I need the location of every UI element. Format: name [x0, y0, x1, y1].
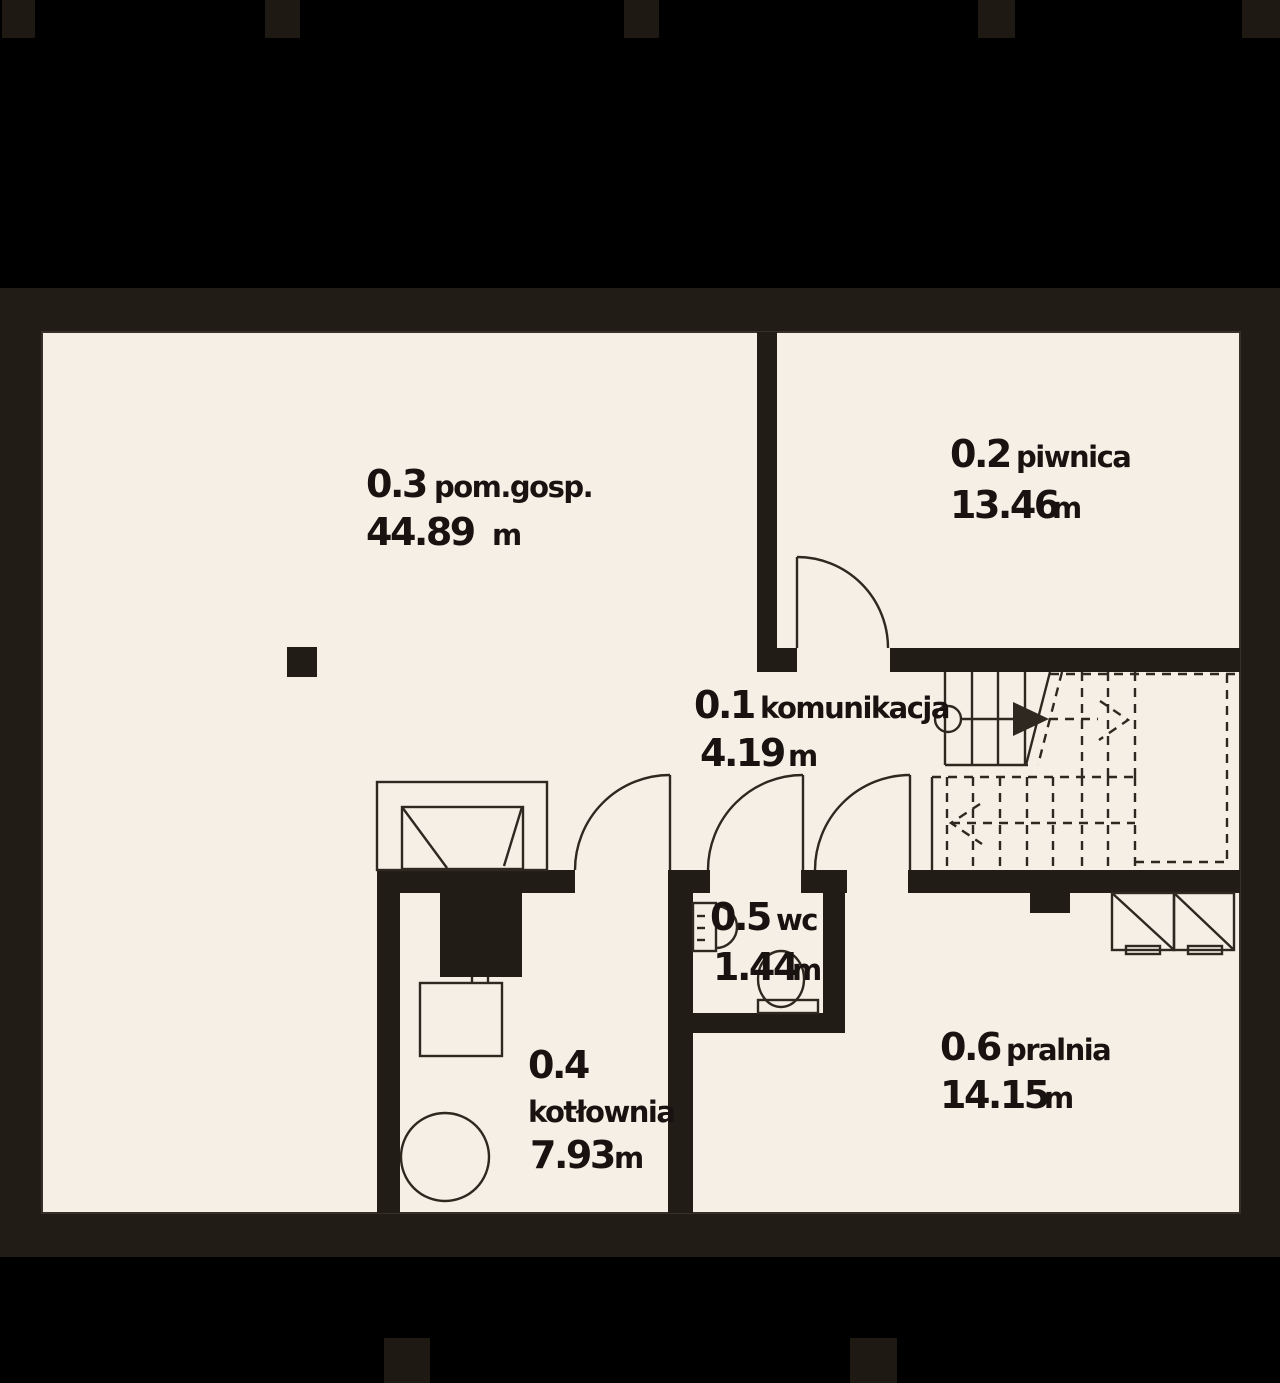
floor-plan: 0.3 pom.gosp. 44.89 m 0.2 piwnica 13.46 …	[0, 0, 1280, 1383]
wall-stub-pralnia	[1030, 893, 1070, 913]
wall-corridor-segment	[668, 870, 710, 893]
chimney-mass	[440, 890, 522, 977]
room-number: 0.6	[940, 1025, 1001, 1069]
room-unit: m	[788, 739, 817, 773]
wall-foot	[757, 648, 797, 672]
room-number: 0.2	[950, 432, 1010, 476]
room-unit: m	[1044, 1081, 1073, 1115]
room-name: wc	[776, 903, 817, 937]
room-number: 0.5	[710, 895, 770, 939]
room-area: 7.93	[530, 1133, 614, 1177]
room-number: 0.1	[694, 683, 754, 727]
room-name: komunikacja	[760, 691, 949, 725]
wall-between-03-02	[757, 332, 777, 648]
room-area: 13.46	[950, 483, 1059, 527]
wall-corridor-segment	[908, 870, 932, 893]
room-area: 4.19	[700, 731, 785, 775]
wall-wc-bottom	[668, 1013, 845, 1033]
room-name: pralnia	[1006, 1033, 1110, 1067]
room-unit: m	[614, 1141, 643, 1175]
room-area: 14.15	[940, 1073, 1048, 1117]
wall-corridor-segment	[801, 870, 847, 893]
room-name: piwnica	[1016, 440, 1130, 474]
room-unit: m	[1052, 491, 1081, 525]
room-unit: m	[792, 953, 821, 987]
wall-kotlownia-left	[377, 893, 400, 1213]
wall-stairs-bottom	[930, 870, 1240, 893]
room-name: kotłownia	[528, 1095, 674, 1129]
room-area: 1.44	[713, 945, 798, 989]
wall-kotlownia-top	[377, 870, 575, 893]
wall-piwnica-stairs	[890, 648, 1240, 672]
room-number: 0.3	[366, 462, 426, 506]
wall-wc-right	[823, 893, 845, 1033]
room-unit: m	[492, 518, 521, 552]
wall-kotlownia-right	[668, 893, 693, 1213]
column	[287, 647, 317, 677]
room-name: pom.gosp.	[434, 470, 592, 504]
room-area: 44.89	[366, 510, 475, 554]
floor-plan-page: 0.3 pom.gosp. 44.89 m 0.2 piwnica 13.46 …	[0, 0, 1280, 1383]
room-number: 0.4	[528, 1043, 589, 1087]
